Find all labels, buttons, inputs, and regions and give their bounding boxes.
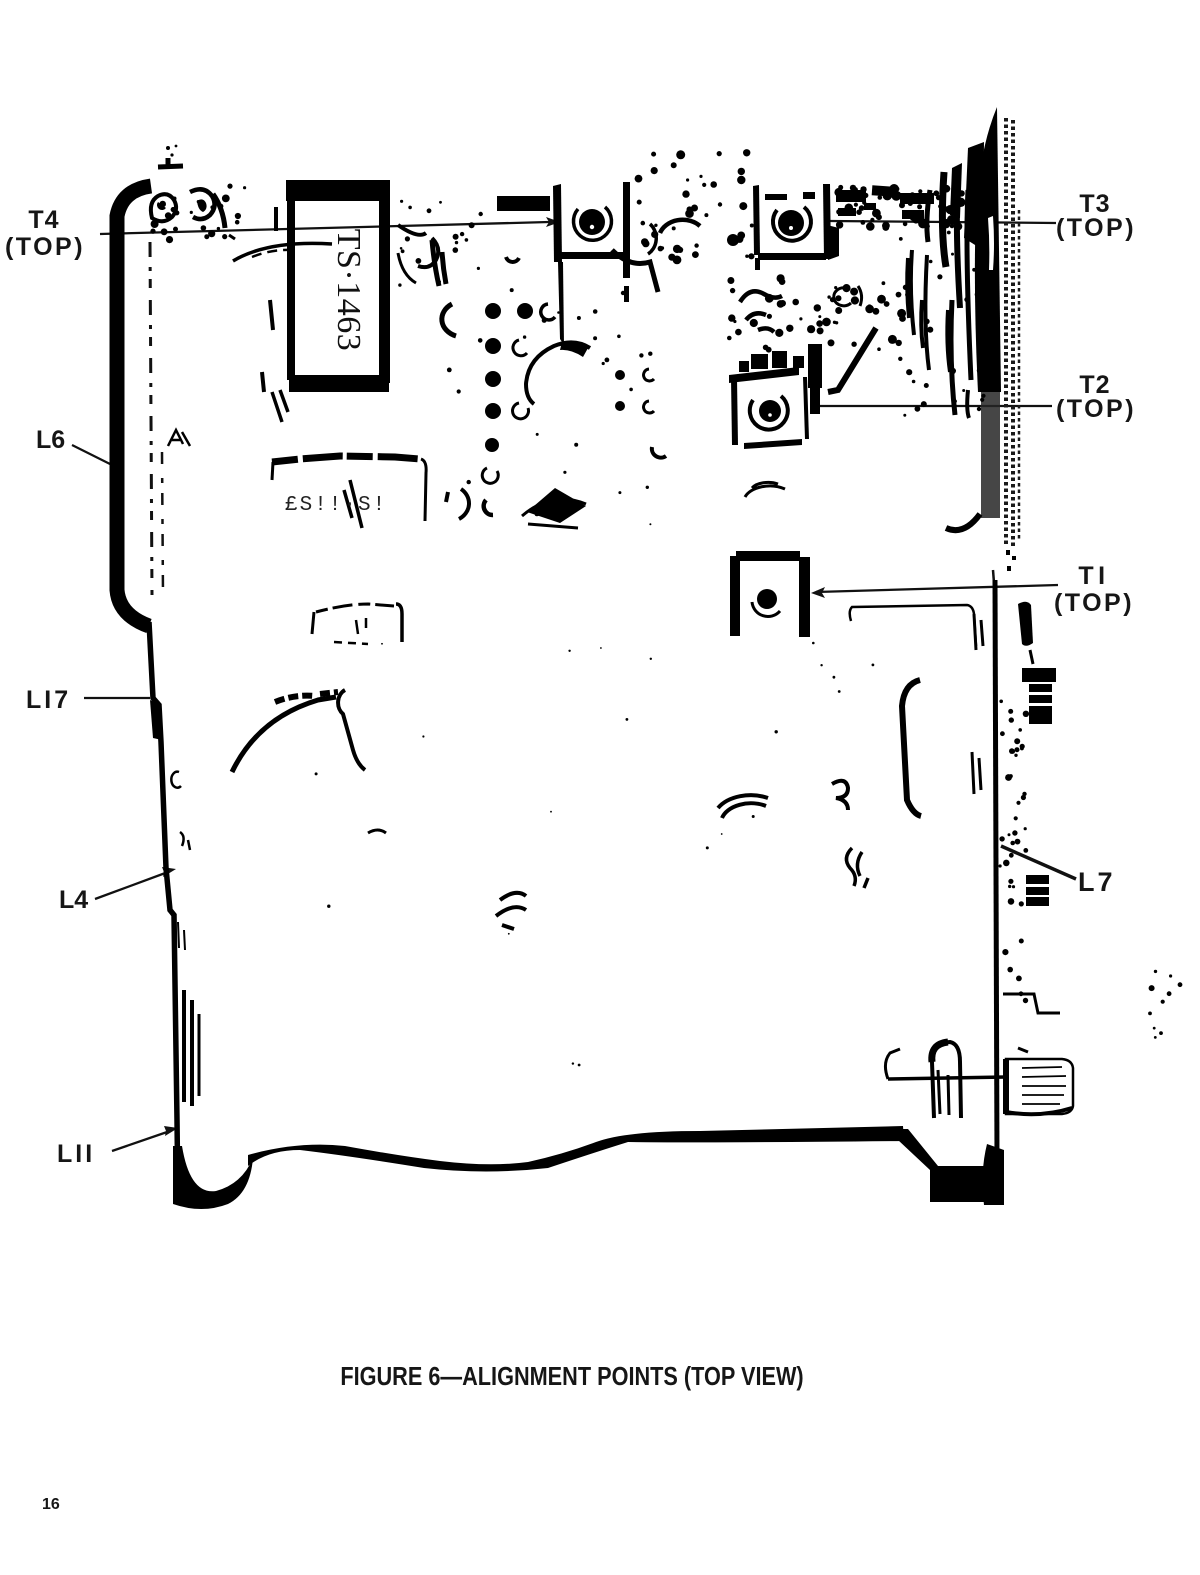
svg-text:FIGURE 6—ALIGNMENT POINTS (TOP: FIGURE 6—ALIGNMENT POINTS (TOP VIEW) xyxy=(340,1362,803,1391)
svg-text:L6: L6 xyxy=(36,426,65,454)
svg-text:LI7: LI7 xyxy=(26,686,71,714)
svg-text:L7: L7 xyxy=(1078,867,1116,897)
svg-text:16: 16 xyxy=(42,1496,60,1513)
svg-text:TS·1463: TS·1463 xyxy=(330,229,367,352)
svg-text:LII: LII xyxy=(57,1140,95,1168)
svg-text:£S!!·S!: £S!!·S! xyxy=(285,494,387,517)
svg-text:L4: L4 xyxy=(59,886,88,914)
svg-text:(TOP): (TOP) xyxy=(1056,395,1136,423)
svg-text:(TOP): (TOP) xyxy=(1054,589,1134,617)
svg-text:(TOP): (TOP) xyxy=(1056,214,1136,242)
svg-text:TI: TI xyxy=(1078,562,1109,590)
svg-text:T4: T4 xyxy=(28,206,59,234)
svg-text:(TOP): (TOP) xyxy=(5,233,85,261)
